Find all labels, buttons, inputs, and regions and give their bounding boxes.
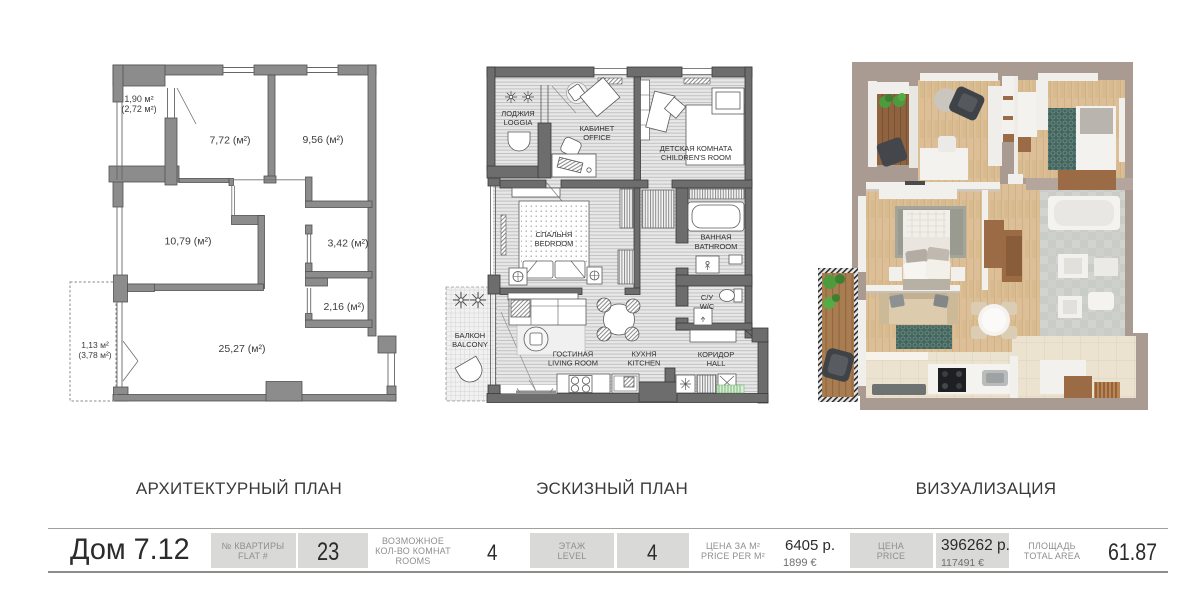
svg-text:CHILDREN'S ROOM: CHILDREN'S ROOM	[661, 153, 731, 162]
svg-text:LOGGIA: LOGGIA	[504, 118, 533, 127]
svg-text:1,13 м²: 1,13 м²	[81, 340, 109, 350]
svg-text:7,72 (м²): 7,72 (м²)	[209, 135, 250, 147]
svg-text:ЛОДЖИЯ: ЛОДЖИЯ	[501, 109, 534, 118]
svg-text:HALL: HALL	[707, 359, 726, 368]
svg-text:25,27 (м²): 25,27 (м²)	[219, 343, 266, 355]
svg-text:(3,78 м²): (3,78 м²)	[78, 350, 111, 360]
svg-text:ГОСТИНАЯ: ГОСТИНАЯ	[553, 350, 593, 359]
svg-text:3,42 (м²): 3,42 (м²)	[327, 238, 368, 250]
svg-text:КУХНЯ: КУХНЯ	[631, 350, 656, 359]
svg-text:БАЛКОН: БАЛКОН	[455, 331, 485, 340]
svg-text:КОРИДОР: КОРИДОР	[698, 350, 734, 359]
svg-text:С/У: С/У	[701, 293, 714, 302]
svg-text:2,16 (м²): 2,16 (м²)	[323, 301, 364, 313]
svg-text:1,90 м²: 1,90 м²	[124, 94, 153, 104]
svg-text:10,79 (м²): 10,79 (м²)	[165, 236, 212, 248]
svg-text:LIVING ROOM: LIVING ROOM	[548, 359, 598, 368]
svg-text:KITCHEN: KITCHEN	[628, 359, 661, 368]
svg-text:КАБИНЕТ: КАБИНЕТ	[580, 124, 615, 133]
svg-text:СПАЛЬНЯ: СПАЛЬНЯ	[536, 230, 573, 239]
svg-text:9,56 (м²): 9,56 (м²)	[302, 134, 343, 146]
svg-text:BEDROOM: BEDROOM	[535, 239, 574, 248]
svg-text:BATHROOM: BATHROOM	[695, 242, 738, 251]
svg-text:OFFICE: OFFICE	[583, 133, 611, 142]
svg-text:ДЕТСКАЯ КОМНАТА: ДЕТСКАЯ КОМНАТА	[660, 144, 732, 153]
svg-text:(2,72 м²): (2,72 м²)	[121, 104, 156, 114]
svg-text:BALCONY: BALCONY	[452, 340, 488, 349]
svg-text:W/C: W/C	[700, 302, 715, 311]
svg-text:ВАННАЯ: ВАННАЯ	[700, 233, 731, 242]
